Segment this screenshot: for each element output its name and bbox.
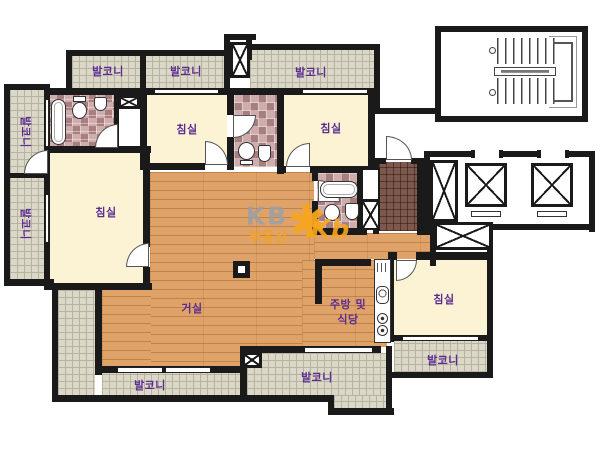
- stove-burner-icon: [377, 313, 388, 324]
- label-bedroom-main: 침실: [95, 204, 116, 220]
- label-living-room: 거실: [181, 300, 202, 316]
- bathtub-icon: [51, 99, 66, 145]
- shaft-x-icon: [430, 160, 458, 222]
- wall: [388, 372, 493, 378]
- wall: [386, 346, 392, 415]
- window: [403, 336, 478, 341]
- elevator-counterweight: [471, 211, 501, 217]
- wall: [328, 408, 394, 415]
- label-bedroom-2: 침실: [320, 120, 341, 136]
- floor-plan: 발코니 발코니 발코니 발코니 발코니 발코니 발코니 발코니 침실 침실 침실…: [0, 0, 600, 449]
- room-entrance: [379, 162, 418, 231]
- toilet-icon: [240, 160, 253, 165]
- label-bedroom-3: 침실: [433, 291, 454, 307]
- elevator-icon: [465, 163, 507, 207]
- shaft-x-icon: [242, 352, 262, 368]
- wall: [227, 93, 234, 115]
- wall: [143, 147, 150, 247]
- elevator-icon: [531, 163, 573, 207]
- kitchen-sink-icon: [376, 286, 389, 304]
- sink-icon: [94, 97, 107, 111]
- label-balcony-bedroom3: 발코니: [427, 352, 459, 368]
- label-balcony-left-upper: 발코니: [18, 116, 34, 148]
- label-balcony-bottom-left: 발코니: [134, 377, 166, 393]
- label-balcony-top-1: 발코니: [92, 63, 124, 79]
- duct-x-icon: [361, 200, 380, 230]
- wall: [582, 26, 588, 122]
- wall: [4, 84, 10, 286]
- wall: [416, 252, 493, 260]
- wall: [250, 44, 380, 50]
- window: [45, 100, 49, 146]
- window: [305, 347, 372, 353]
- room-balcony-bottom-vert: [58, 290, 95, 396]
- sink-icon: [258, 145, 271, 162]
- window: [166, 367, 210, 373]
- wall: [277, 93, 284, 174]
- shaft-x-icon: [230, 42, 250, 78]
- door-nub: [537, 150, 541, 158]
- wall: [66, 50, 232, 56]
- wall: [435, 116, 588, 122]
- wall: [435, 26, 441, 122]
- label-balcony-top-3: 발코니: [295, 64, 327, 80]
- dish-rack-icon: [377, 263, 388, 272]
- window: [118, 367, 162, 373]
- window: [155, 89, 218, 94]
- stairs-post: [489, 89, 496, 96]
- wall: [315, 259, 371, 266]
- window: [45, 195, 49, 242]
- wall: [44, 88, 150, 95]
- wall: [315, 259, 322, 304]
- stove-burner-icon: [377, 325, 388, 336]
- elevator-counterweight: [537, 211, 567, 217]
- bathtub-icon: [320, 181, 358, 198]
- label-bedroom-1: 침실: [176, 121, 197, 137]
- label-balcony-bottom-center: 발코니: [301, 369, 333, 385]
- stairs-icon: [497, 78, 557, 104]
- wall: [52, 395, 334, 402]
- stairs-landing: [494, 67, 556, 76]
- room-balcony-bottom-horiz: [102, 373, 247, 396]
- stairs-turn-outer: [549, 36, 577, 108]
- wall: [435, 26, 588, 32]
- shaft-x-icon: [118, 95, 140, 109]
- door-nub: [471, 150, 475, 158]
- wall: [374, 108, 440, 114]
- kb-logo-letters: Kb: [311, 215, 350, 245]
- wall: [227, 137, 234, 170]
- kb-watermark-subtitle: 부동산: [249, 227, 288, 247]
- wall: [489, 224, 595, 230]
- toilet-icon: [238, 142, 255, 160]
- elevator-door-gap: [474, 151, 500, 157]
- label-balcony-left-lower: 발코니: [18, 208, 34, 240]
- window: [303, 89, 367, 94]
- closet: [361, 168, 380, 201]
- wall: [589, 151, 595, 232]
- column: [233, 261, 250, 278]
- wall: [52, 287, 58, 402]
- elevator-door-gap: [540, 151, 566, 157]
- wall: [95, 283, 102, 375]
- toilet-icon: [72, 102, 87, 119]
- wall: [277, 166, 286, 173]
- label-kitchen-line2: 식당: [337, 311, 358, 327]
- wall: [143, 163, 205, 170]
- room-living-ext: [102, 287, 151, 367]
- wall: [424, 151, 595, 157]
- label-kitchen-line1: 주방 및: [330, 296, 366, 312]
- label-balcony-top-2: 발코니: [170, 63, 202, 79]
- wall: [368, 90, 375, 167]
- wall: [417, 158, 424, 235]
- stairs-post: [489, 47, 496, 54]
- stairs-icon: [497, 38, 557, 64]
- door-nub: [565, 150, 569, 158]
- shaft-x-icon: [434, 222, 492, 250]
- door-arc-front-door: [386, 136, 412, 160]
- door-nub: [499, 150, 503, 158]
